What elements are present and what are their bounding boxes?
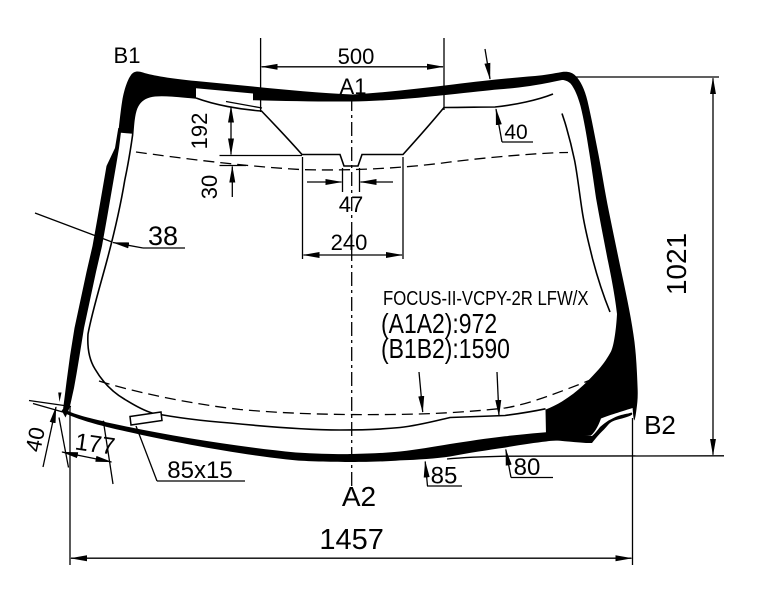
svg-text:1021: 1021 — [661, 233, 692, 295]
svg-text:A1: A1 — [340, 74, 367, 99]
svg-text:1457: 1457 — [319, 524, 384, 556]
svg-text:40: 40 — [504, 121, 527, 144]
svg-text:FOCUS-II-VCPY-2R LFW/X: FOCUS-II-VCPY-2R LFW/X — [383, 286, 589, 309]
svg-text:47: 47 — [339, 192, 363, 217]
svg-text:38: 38 — [148, 221, 178, 251]
svg-text:177: 177 — [73, 428, 116, 460]
svg-text:(B1B2):1590: (B1B2):1590 — [381, 334, 510, 365]
svg-text:40: 40 — [20, 425, 50, 454]
svg-text:B2: B2 — [644, 410, 676, 440]
svg-text:85: 85 — [431, 463, 458, 490]
svg-text:30: 30 — [197, 175, 222, 199]
svg-text:A2: A2 — [342, 481, 376, 512]
svg-text:240: 240 — [331, 230, 368, 255]
svg-text:B1: B1 — [114, 43, 141, 68]
svg-text:85x15: 85x15 — [167, 457, 232, 484]
svg-text:80: 80 — [514, 454, 541, 481]
svg-text:192: 192 — [187, 113, 212, 150]
svg-text:500: 500 — [338, 44, 375, 69]
